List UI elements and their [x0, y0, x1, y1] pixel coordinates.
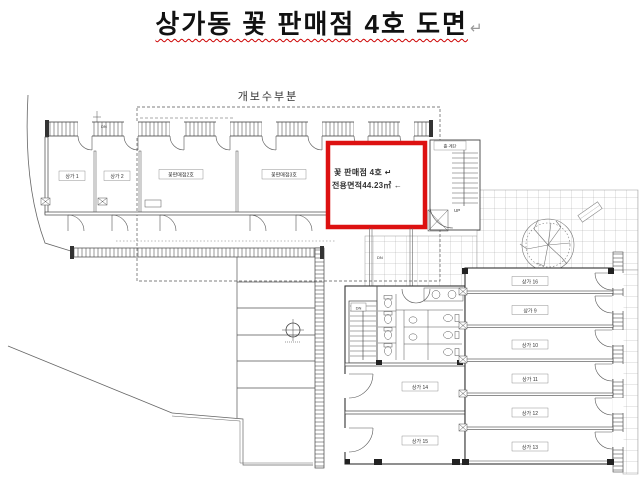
renovation-label: 개보수부분: [238, 90, 299, 103]
document-page: 상가동 꽃 판매점 4호 도면↵: [0, 0, 640, 480]
lower-building-mid: DN: [344, 286, 465, 465]
stair-dn: DN: [349, 301, 377, 363]
room-label-sangga12: 상가 12: [522, 410, 538, 417]
room-label-sangga10: 상가 10: [522, 342, 538, 349]
lower-building-right: 상가 16 상가 9 상가 10 상가 11 상가 12 상가 13: [459, 252, 624, 472]
retaining-wall-hatched: [73, 248, 323, 257]
room-label-sangga9: 상가 9: [523, 307, 537, 314]
room-label-shop2: 꽃판매점2호: [168, 172, 194, 179]
dimension-tick: [93, 111, 101, 123]
stair-annex: 홀·계단 UP: [428, 140, 480, 231]
room-label-sangga11: 상가 11: [522, 376, 538, 383]
window-symbols-upper: [41, 198, 161, 207]
site-boundary: [8, 95, 313, 465]
stair-annex-label: 홀·계단: [444, 143, 457, 150]
highlight-line1: 꽃 판매점 4호 ↵: [334, 167, 392, 177]
up-annotation: UP: [454, 208, 460, 213]
room-label-sangga14: 상가 14: [412, 384, 428, 391]
crosshair-benchmark-icon: [282, 319, 304, 342]
room-label-sangga1: 상가 1: [65, 173, 79, 180]
room-label-shop3: 꽃판매점3호: [271, 172, 297, 179]
dn-annotation: DN: [101, 124, 107, 129]
floor-plan-drawing: 개보수부분 DN: [0, 0, 640, 480]
room-label-sangga15: 상가 15: [412, 438, 428, 445]
parking-area: [70, 246, 324, 468]
room-label-sangga2: 상가 2: [110, 173, 124, 180]
dn-annotation-stair: DN: [356, 306, 362, 311]
dn-annotation-walkway: DN: [377, 255, 383, 260]
south-door-arcs: [68, 215, 312, 231]
highlight-unit-4: 꽃 판매점 4호 ↵ 전용면적44.23㎡ ←: [328, 143, 425, 227]
room-label-sangga13: 상가 13: [522, 444, 538, 451]
room-label-sangga16: 상가 16: [522, 278, 538, 285]
highlight-line2: 전용면적44.23㎡ ←: [332, 180, 402, 190]
